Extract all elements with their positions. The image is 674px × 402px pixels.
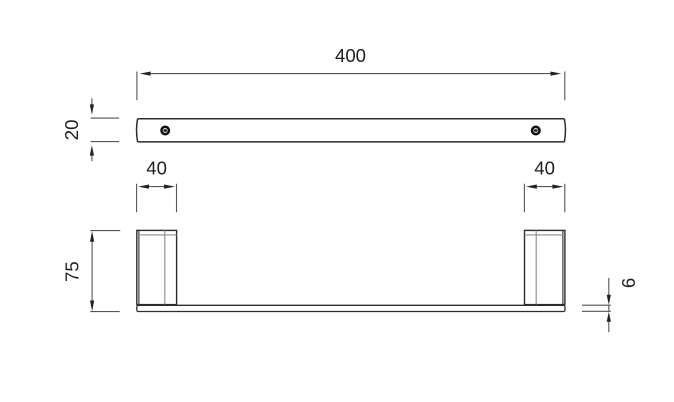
svg-text:20: 20 xyxy=(61,120,82,141)
svg-text:75: 75 xyxy=(62,261,83,282)
svg-text:400: 400 xyxy=(335,45,366,66)
svg-text:40: 40 xyxy=(146,158,167,179)
svg-text:6: 6 xyxy=(618,278,639,288)
svg-text:40: 40 xyxy=(534,158,555,179)
